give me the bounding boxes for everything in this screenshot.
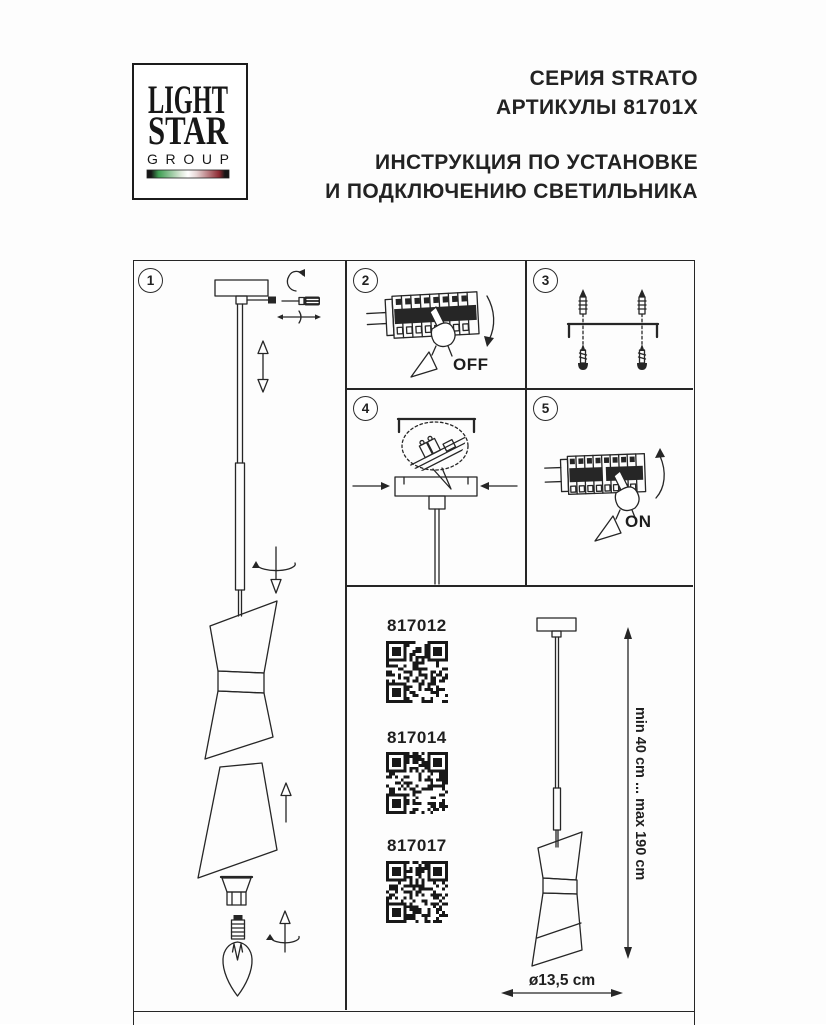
rotate-arrow-icon [287,269,305,291]
next-section-border [133,1012,695,1025]
rotate-up-arrow-icon [266,911,299,952]
step1-panel: 1 [133,260,345,1010]
series-title: СЕРИЯ STRATO [218,64,698,93]
instruction-title-line2: И ПОДКЛЮЧЕНИЮ СВЕТИЛЬНИКА [218,177,698,206]
shade-middle-band [218,671,264,693]
circuit-breaker-on-diagram [525,388,695,585]
canopy-icon [395,477,477,496]
height-dimension-arrow [624,627,632,959]
rotate-down-arrow-icon [252,547,295,593]
mounting-bracket-icon [398,419,475,432]
products-panel: 817012 817014 817017 [345,585,695,1010]
upper-shade-cone [210,601,277,673]
mounting-bracket-icon [568,324,658,337]
bracket-fixing-diagram [525,260,695,388]
wall-plug-icon [579,289,587,323]
up-arrow-icon [281,783,291,822]
circuit-breaker-icon [366,292,479,340]
logo-word-star: STAR [148,108,229,153]
set-screw-icon [268,297,276,304]
screw-icon [578,326,588,370]
pendant-assembly-diagram [133,260,345,1010]
left-right-arrow-icon [277,311,321,323]
header: СЕРИЯ STRATO АРТИКУЛЫ 81701X ИНСТРУКЦИЯ … [218,64,698,206]
circuit-breaker-off-diagram [345,260,525,388]
light-bulb-icon [223,915,252,996]
terminal-block-icon [398,420,474,477]
height-range-label: min 40 cm ... max 190 cm [632,707,648,877]
off-label: OFF [453,355,489,375]
wall-plug-icon [638,289,646,323]
diameter-label: ø13,5 cm [497,972,627,990]
italy-flag-bar [147,170,229,178]
exploded-shade-cone [198,763,277,878]
lamp-socket-icon [221,877,252,905]
step4-panel: 4 [345,388,525,585]
on-label: ON [625,512,652,532]
articles-title: АРТИКУЛЫ 81701X [218,93,698,122]
curved-up-arrow-icon [655,448,665,498]
step3-panel: 3 [525,260,695,388]
instruction-page: LIGHT STAR GROUP СЕРИЯ STRATO АРТИКУЛЫ 8… [0,0,826,1024]
push-in-arrow-icon [353,482,517,490]
diameter-dimension-arrow [501,989,623,997]
instruction-title-line1: ИНСТРУКЦИЯ ПО УСТАНОВКЕ [218,148,698,177]
logo-word-group: GROUP [147,151,229,167]
up-down-arrow-icon [258,341,268,392]
screwdriver-icon [282,297,320,306]
lower-shade-cone [205,691,273,759]
step2-panel: 2 [345,260,525,388]
step5-panel: 5 [525,388,695,585]
curved-down-arrow-icon [484,296,494,347]
canopy-mounting-diagram [345,388,525,585]
screw-icon [637,326,647,370]
